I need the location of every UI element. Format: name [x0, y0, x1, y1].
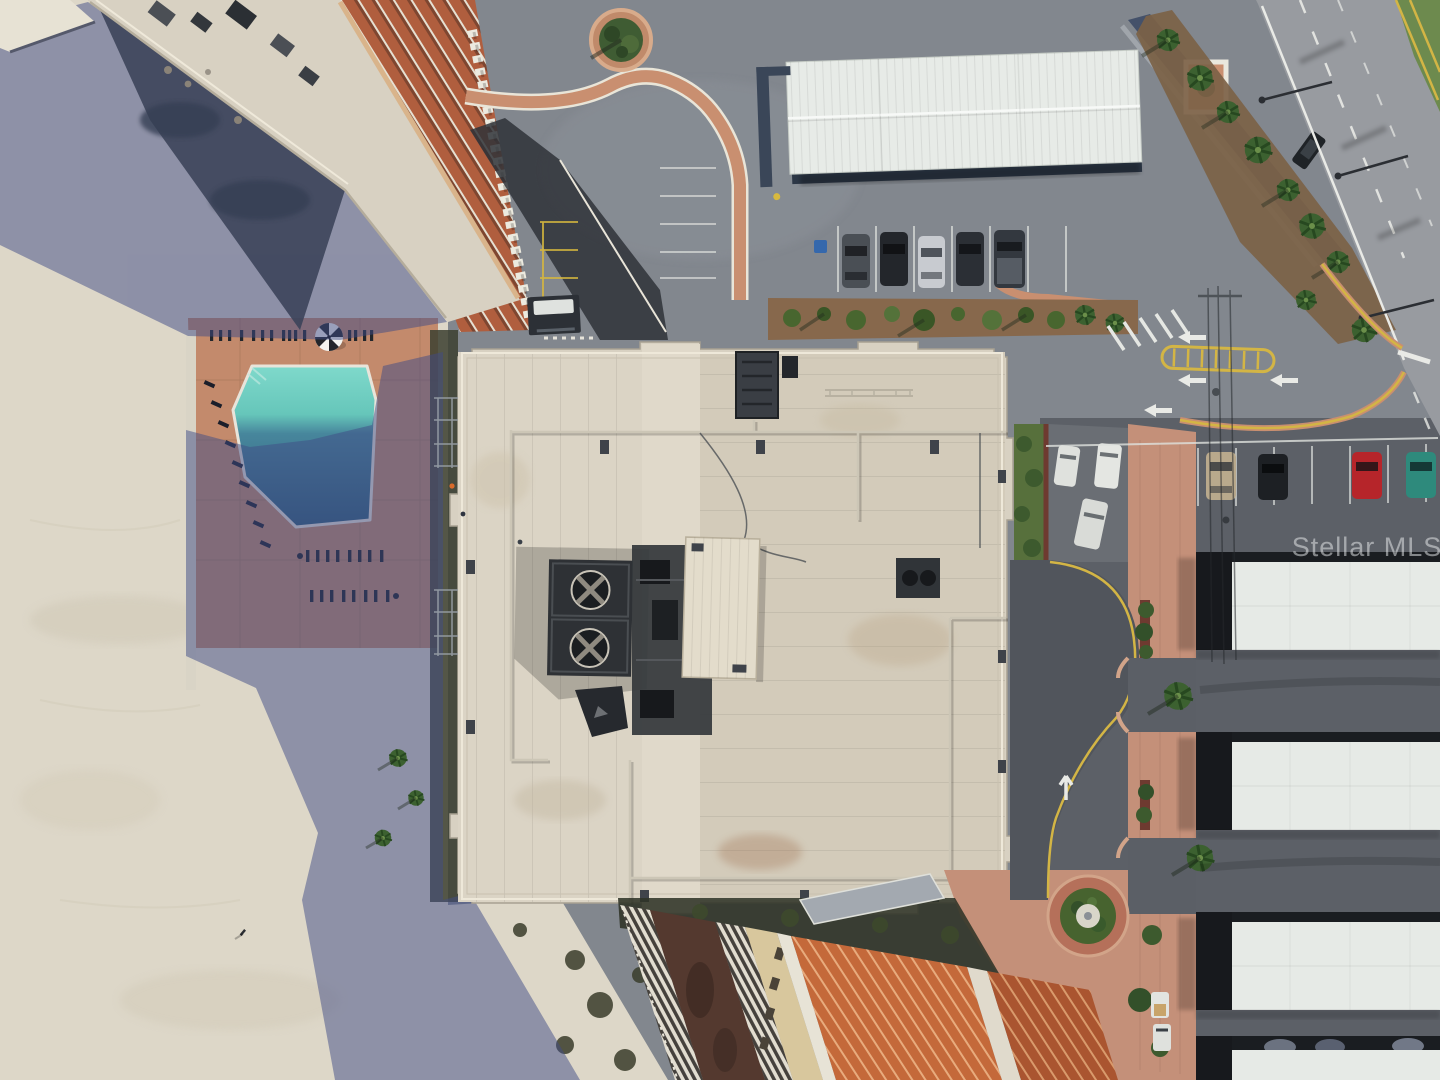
car: [842, 234, 870, 288]
storage-canopy-row: [1178, 912, 1440, 1019]
car: [918, 236, 945, 288]
storage-canopy-row: [1178, 552, 1440, 659]
main-rooftop: [434, 342, 1013, 914]
car: [1352, 452, 1382, 499]
pickup-truck: [994, 230, 1025, 288]
watermark: Stellar MLS: [1292, 532, 1440, 562]
storage-canopy-row-partial: [1196, 1036, 1440, 1080]
landscape-strip: [768, 298, 1138, 340]
service-truck: [527, 295, 581, 336]
roof-equipment-east: [896, 558, 940, 598]
car: [880, 232, 908, 286]
penthouse-roof: [682, 537, 767, 682]
fountain-garden: [1048, 876, 1128, 956]
storage-canopy-row: [1178, 732, 1440, 839]
aisle-crossing-2: [1128, 838, 1196, 914]
car: [956, 232, 984, 286]
aerial-photo: Stellar MLS: [0, 0, 1440, 1080]
car: [1406, 452, 1436, 498]
car: [1258, 454, 1288, 500]
handicap-marking: [814, 240, 827, 253]
